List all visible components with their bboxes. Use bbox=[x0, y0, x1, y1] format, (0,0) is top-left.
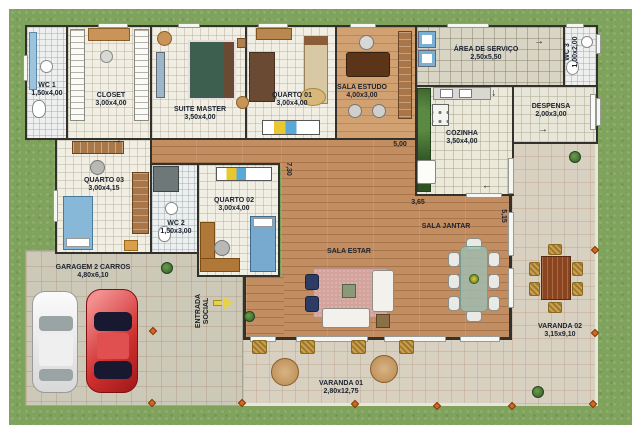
room-name: WC 3 bbox=[564, 43, 571, 61]
window bbox=[508, 212, 514, 256]
shrub-icon bbox=[532, 386, 544, 398]
car-rear-window bbox=[39, 369, 73, 381]
dining-chair bbox=[448, 252, 460, 267]
cabinet bbox=[132, 172, 149, 234]
patio-chair bbox=[300, 340, 315, 354]
door-arrow-icon: → bbox=[538, 125, 548, 135]
entrance-word: SOCIAL bbox=[203, 298, 210, 324]
dim-label: 5,15 bbox=[499, 209, 507, 223]
coffee-table bbox=[342, 284, 356, 298]
wardrobe-color bbox=[262, 120, 320, 135]
sofa bbox=[372, 270, 394, 312]
car-roof bbox=[39, 334, 73, 366]
stove bbox=[432, 104, 449, 126]
label-closet: CLOSET3,00x4,00 bbox=[95, 92, 126, 108]
entrance-arrow-head bbox=[223, 296, 233, 310]
entrance-word: ENTRADA bbox=[195, 294, 202, 328]
room-name: COZINHA bbox=[446, 130, 478, 137]
guest-chair bbox=[348, 104, 362, 118]
label-garagem: GARAGEM 2 CARROS4,80x6,10 bbox=[56, 264, 131, 280]
room-dims: 3,00x4,00 bbox=[218, 205, 249, 212]
side-table bbox=[376, 314, 390, 328]
pouf bbox=[124, 240, 138, 251]
window bbox=[178, 23, 200, 28]
patio-chair bbox=[529, 282, 540, 296]
sink bbox=[581, 36, 593, 48]
floor-plan: → → → → → WC 11,50x4,00 CLOSET3,00x4,00 … bbox=[0, 0, 640, 433]
mirror bbox=[156, 52, 165, 98]
sink bbox=[165, 202, 178, 215]
car-roof bbox=[97, 333, 129, 359]
room-name: WC 1 bbox=[38, 82, 56, 89]
room-name: SALA ESTAR bbox=[327, 248, 371, 255]
dim-value: 5,15 bbox=[500, 209, 507, 223]
sink bbox=[40, 60, 53, 73]
door-arrow-icon: → bbox=[112, 136, 122, 146]
patio-chair bbox=[548, 244, 562, 255]
desk-chair bbox=[214, 240, 230, 256]
room-name: VARANDA 01 bbox=[319, 380, 363, 387]
washer bbox=[418, 31, 436, 48]
patio-chair bbox=[399, 340, 414, 354]
car-windshield bbox=[39, 316, 73, 331]
entry-foyer-floor bbox=[243, 277, 284, 340]
dim-label: 5,00 bbox=[393, 141, 407, 149]
window bbox=[350, 23, 376, 28]
car-windshield bbox=[94, 312, 132, 331]
patio-door bbox=[384, 336, 446, 342]
label-cozinha: COZINHA3,50x4,00 bbox=[446, 130, 478, 146]
bookshelf bbox=[398, 31, 412, 119]
room-name: SUITE MASTER bbox=[174, 106, 226, 113]
label-area-servico: ÁREA DE SERVIÇO2,50x5,50 bbox=[454, 46, 519, 62]
dim-label: 7,30 bbox=[284, 162, 292, 176]
label-wc2: WC 21,50x3,00 bbox=[160, 220, 191, 236]
bed-headboard bbox=[304, 36, 328, 45]
pouf bbox=[236, 96, 249, 109]
label-sala-jantar: SALA JANTAR bbox=[422, 223, 471, 231]
room-name: GARAGEM 2 CARROS bbox=[56, 264, 131, 271]
desk bbox=[346, 52, 390, 77]
window bbox=[508, 158, 514, 194]
round-patio-table bbox=[271, 358, 299, 386]
patio-chair bbox=[548, 302, 562, 313]
room-dims: 2,80x12,75 bbox=[323, 388, 358, 395]
shrub-icon bbox=[569, 151, 581, 163]
label-suite-master: SUITE MASTER3,50x4,00 bbox=[174, 106, 226, 122]
kitchen-sink bbox=[459, 89, 472, 98]
dresser bbox=[256, 28, 292, 40]
room-name: DESPENSA bbox=[532, 103, 571, 110]
room-name: QUARTO 03 bbox=[84, 177, 124, 184]
dining-chair bbox=[488, 252, 500, 267]
kitchen-opening bbox=[466, 193, 502, 198]
dresser bbox=[88, 28, 130, 41]
room-dims: 3,00x4,00 bbox=[95, 100, 126, 107]
room-name: CLOSET bbox=[97, 92, 125, 99]
window bbox=[508, 268, 514, 308]
door-arrow-icon: → bbox=[534, 37, 544, 47]
wardrobe-color bbox=[216, 167, 272, 181]
entrance-arrow-icon bbox=[213, 300, 222, 306]
room-dims: 3,15x9,10 bbox=[544, 331, 575, 338]
toilet bbox=[32, 100, 46, 118]
centerpiece bbox=[469, 274, 479, 284]
stool bbox=[100, 50, 113, 63]
shower bbox=[153, 166, 179, 192]
room-name: SALA JANTAR bbox=[422, 223, 471, 230]
washer bbox=[418, 50, 436, 67]
dining-chair bbox=[448, 296, 460, 311]
shrub-icon bbox=[161, 262, 173, 274]
dim-value: 7,30 bbox=[285, 162, 292, 176]
dining-chair bbox=[448, 274, 460, 289]
room-dims: 1,00x2,00 bbox=[572, 36, 579, 67]
room-name: SALA ESTUDO bbox=[337, 84, 387, 91]
kitchen-sink bbox=[440, 89, 453, 98]
patio-chair bbox=[252, 340, 267, 354]
patio-chair bbox=[529, 262, 540, 276]
room-dims: 3,00x4,15 bbox=[88, 185, 119, 192]
round-patio-table bbox=[370, 355, 398, 383]
room-name: VARANDA 02 bbox=[538, 323, 582, 330]
car-rear-window bbox=[94, 361, 132, 379]
wardrobe bbox=[70, 29, 85, 121]
desk-chair bbox=[359, 35, 374, 50]
window bbox=[596, 34, 601, 54]
car-red bbox=[86, 289, 138, 393]
window bbox=[447, 23, 489, 28]
wardrobe bbox=[134, 29, 149, 121]
room-dims: 3,50x4,00 bbox=[446, 138, 477, 145]
label-quarto-02: QUARTO 023,00x4,00 bbox=[214, 197, 254, 213]
desk-l bbox=[200, 258, 240, 272]
fridge bbox=[417, 160, 436, 184]
label-wc3: WC 31,00x2,00 bbox=[564, 36, 580, 67]
patio-chair bbox=[572, 282, 583, 296]
nightstand bbox=[237, 38, 246, 48]
window bbox=[53, 190, 58, 222]
room-dims: 2,50x5,50 bbox=[470, 54, 501, 61]
patio-chair bbox=[351, 340, 366, 354]
label-quarto-03: QUARTO 033,00x4,15 bbox=[84, 177, 124, 193]
room-dims: 3,50x4,00 bbox=[184, 114, 215, 121]
window bbox=[596, 98, 601, 126]
label-sala-estudo: SALA ESTUDO4,00x3,00 bbox=[337, 84, 387, 100]
room-dims: 4,00x3,00 bbox=[346, 92, 377, 99]
dim-label: 3,65 bbox=[411, 199, 425, 207]
room-name: ÁREA DE SERVIÇO bbox=[454, 46, 519, 53]
room-dims: 4,80x6,10 bbox=[77, 272, 108, 279]
bed-pillow bbox=[253, 218, 273, 227]
label-varanda-01: VARANDA 012,80x12,75 bbox=[319, 380, 363, 396]
desk-chair bbox=[90, 160, 105, 175]
room-dims: 3,00x4,00 bbox=[276, 100, 307, 107]
dining-chair bbox=[488, 274, 500, 289]
sofa bbox=[322, 308, 370, 328]
room-name: QUARTO 02 bbox=[214, 197, 254, 204]
room-name: QUARTO 01 bbox=[272, 92, 312, 99]
patio-door bbox=[460, 336, 500, 342]
bed-pillows bbox=[224, 42, 234, 98]
dim-value: 3,65 bbox=[411, 199, 425, 206]
car-white bbox=[32, 291, 78, 393]
dining-chair bbox=[488, 296, 500, 311]
patio-table bbox=[541, 256, 571, 300]
room-dims: 1,50x3,00 bbox=[160, 228, 191, 235]
shrub-icon bbox=[244, 311, 255, 322]
guest-chair bbox=[372, 104, 386, 118]
armchair bbox=[305, 296, 319, 312]
label-varanda-02: VARANDA 023,15x9,10 bbox=[538, 323, 582, 339]
patio-chair bbox=[572, 262, 583, 276]
door-arrow-icon: → bbox=[489, 88, 499, 98]
door-arrow-icon: → bbox=[482, 182, 492, 192]
room-dims: 2,00x3,00 bbox=[535, 111, 566, 118]
pantry-shelf bbox=[590, 94, 596, 130]
label-sala-estar: SALA ESTAR bbox=[327, 248, 371, 256]
room-name: WC 2 bbox=[167, 220, 185, 227]
room-dims: 1,50x4,00 bbox=[31, 90, 62, 97]
window bbox=[566, 23, 584, 28]
label-despensa: DESPENSA2,00x3,00 bbox=[532, 103, 571, 119]
dim-value: 5,00 bbox=[393, 141, 407, 148]
window bbox=[23, 55, 28, 81]
label-quarto-01: QUARTO 013,00x4,00 bbox=[272, 92, 312, 108]
label-wc1: WC 11,50x4,00 bbox=[31, 82, 62, 98]
bed-pillow bbox=[66, 238, 90, 247]
round-rug bbox=[157, 31, 172, 46]
label-entrada-social: ENTRADASOCIAL bbox=[195, 294, 211, 328]
armchair bbox=[305, 274, 319, 290]
